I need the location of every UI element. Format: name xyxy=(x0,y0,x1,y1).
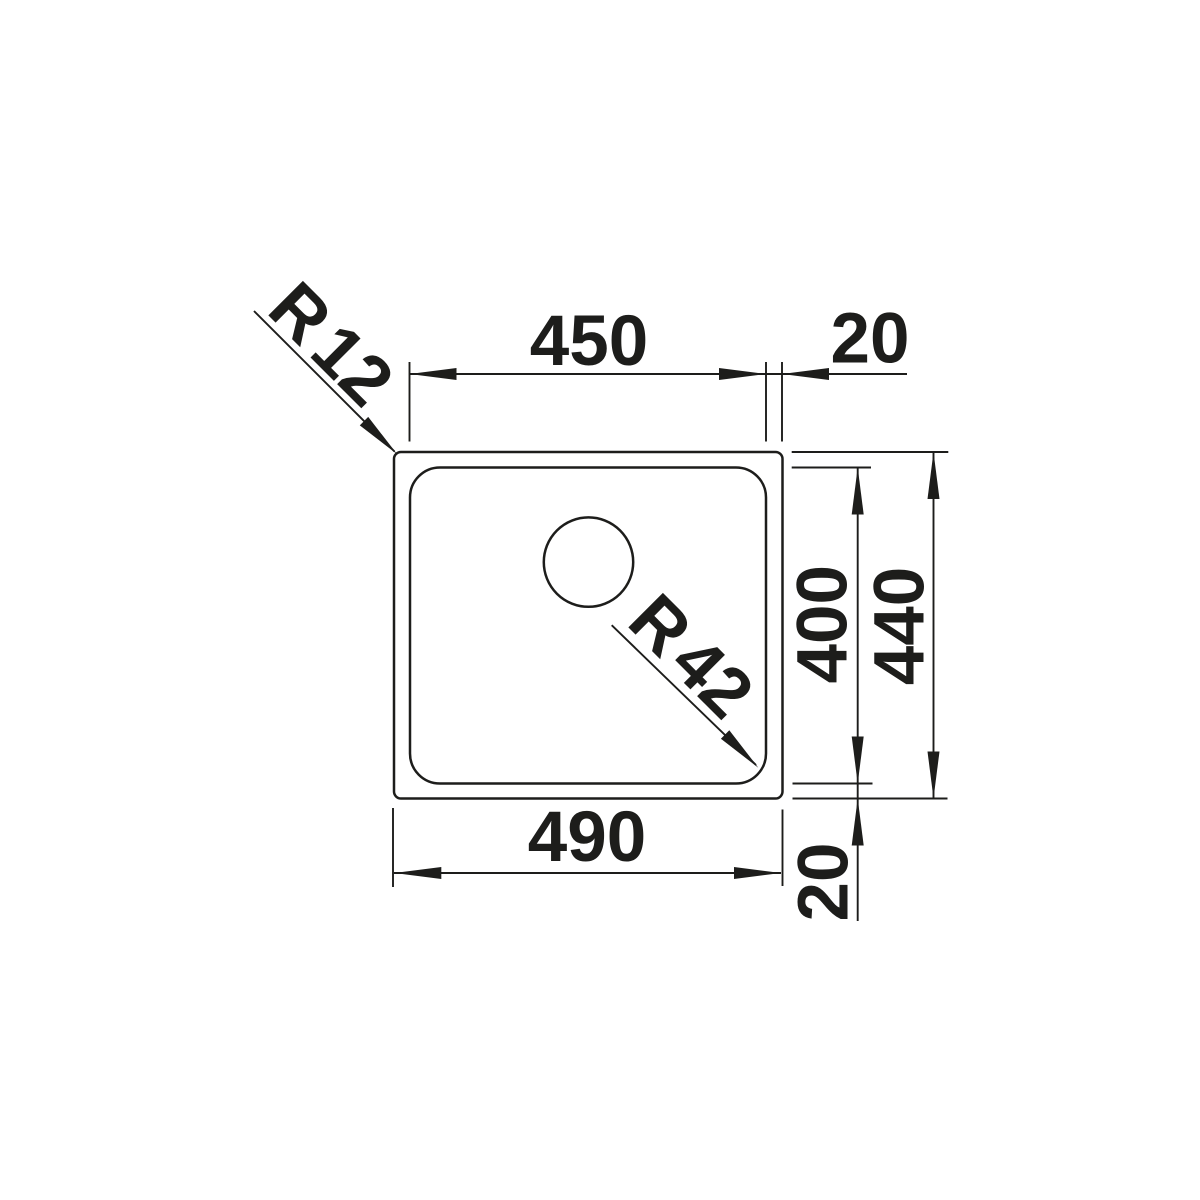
svg-text:400: 400 xyxy=(784,565,863,683)
svg-text:20: 20 xyxy=(831,300,910,379)
svg-text:20: 20 xyxy=(785,843,864,922)
svg-text:440: 440 xyxy=(860,567,939,685)
svg-text:490: 490 xyxy=(528,798,646,877)
svg-text:450: 450 xyxy=(530,302,648,381)
